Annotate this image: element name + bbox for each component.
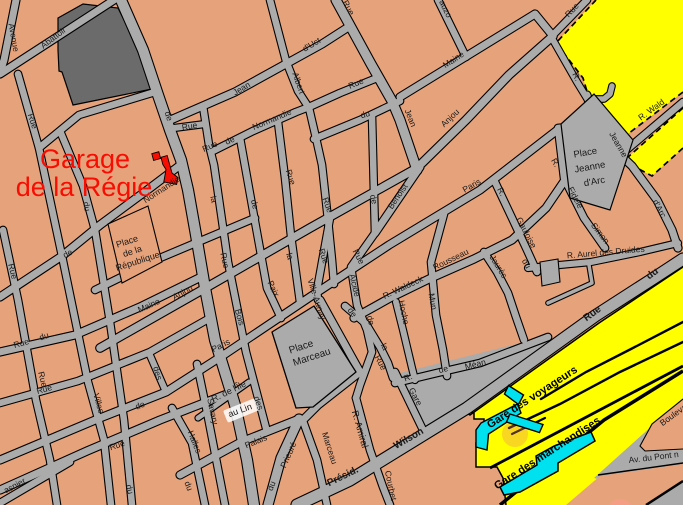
svg-text:de la Régie: de la Régie (16, 172, 153, 202)
svg-text:du: du (81, 201, 93, 212)
svg-text:Garage: Garage (40, 144, 130, 174)
